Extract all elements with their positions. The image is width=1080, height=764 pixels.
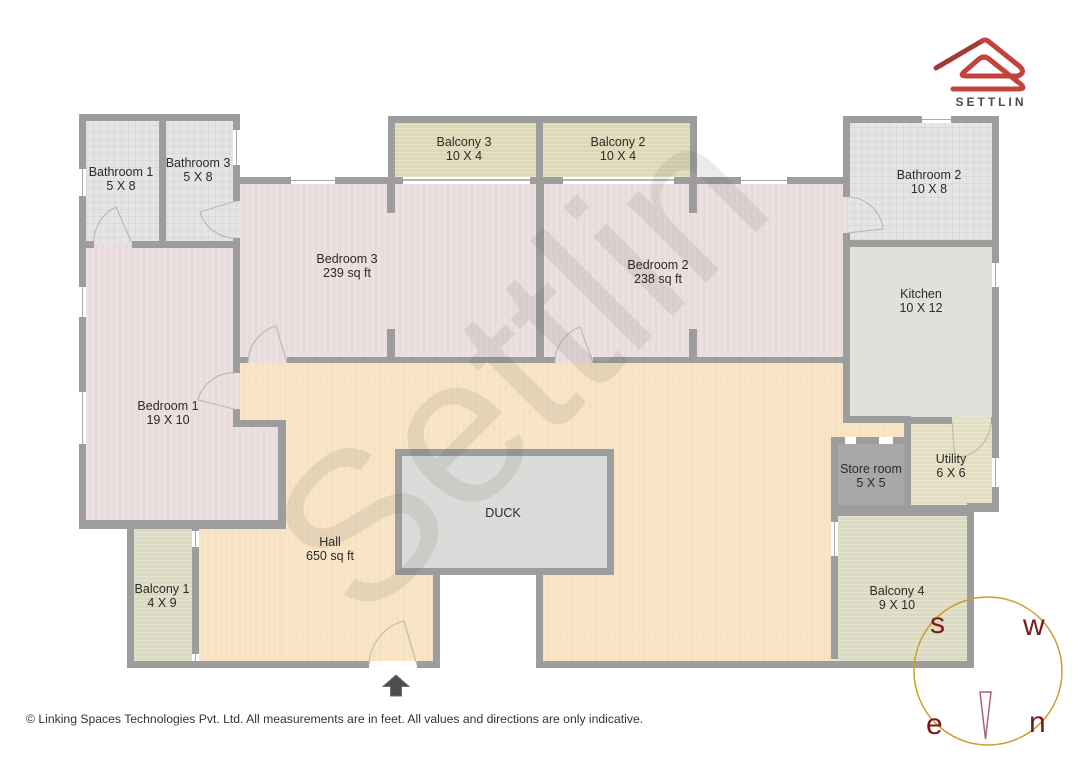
- svg-text:w: w: [1022, 609, 1045, 642]
- svg-text:n: n: [1029, 706, 1046, 739]
- svg-text:e: e: [926, 708, 943, 741]
- svg-text:s: s: [930, 607, 945, 640]
